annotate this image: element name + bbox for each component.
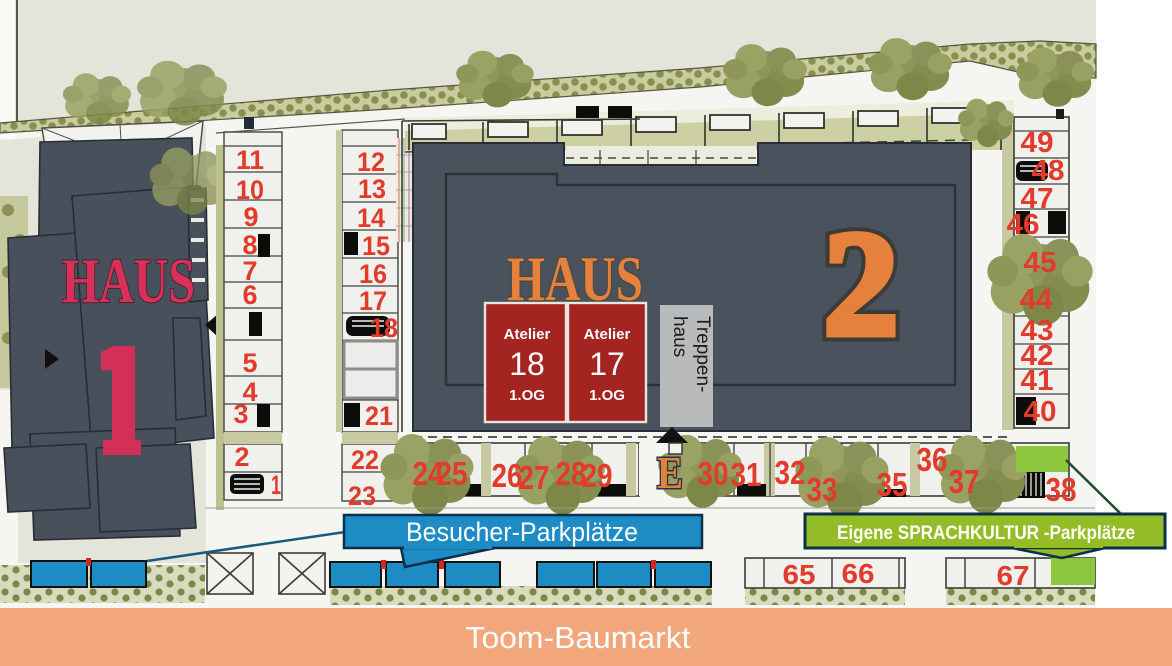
svg-text:15: 15: [362, 231, 390, 261]
svg-text:23: 23: [348, 481, 376, 511]
svg-text:16: 16: [359, 259, 387, 289]
svg-text:30: 30: [698, 455, 729, 492]
svg-text:66: 66: [842, 558, 875, 589]
svg-text:29: 29: [582, 457, 613, 494]
svg-text:41: 41: [1021, 365, 1054, 397]
svg-text:25: 25: [437, 455, 468, 492]
svg-text:12: 12: [357, 147, 385, 177]
svg-text:5: 5: [243, 348, 258, 378]
svg-text:2: 2: [235, 442, 250, 472]
svg-text:17: 17: [359, 286, 387, 316]
svg-text:18: 18: [509, 346, 545, 382]
svg-text:36: 36: [917, 441, 948, 478]
svg-text:32: 32: [775, 454, 806, 491]
svg-text:14: 14: [357, 203, 385, 233]
svg-text:31: 31: [731, 456, 762, 493]
svg-text:67: 67: [997, 560, 1030, 591]
svg-text:46: 46: [1007, 209, 1040, 241]
svg-text:1: 1: [271, 470, 281, 500]
svg-text:1.OG: 1.OG: [509, 387, 545, 404]
svg-text:27: 27: [519, 459, 550, 496]
svg-text:3: 3: [234, 399, 249, 429]
svg-text:Toom-Baumarkt: Toom-Baumarkt: [466, 620, 691, 655]
svg-text:35: 35: [877, 466, 908, 503]
svg-text:33: 33: [807, 471, 838, 508]
svg-text:Atelier: Atelier: [584, 326, 631, 343]
svg-text:HAUS: HAUS: [62, 245, 195, 316]
svg-text:Eigene SPRACHKULTUR -Parkplätz: Eigene SPRACHKULTUR -Parkplätze: [837, 523, 1135, 544]
svg-text:2: 2: [824, 201, 899, 367]
svg-text:45: 45: [1024, 247, 1057, 279]
svg-text:18: 18: [370, 313, 398, 343]
svg-text:38: 38: [1046, 471, 1077, 508]
svg-text:17: 17: [589, 346, 625, 382]
svg-text:6: 6: [243, 280, 258, 310]
svg-text:Atelier: Atelier: [504, 326, 551, 343]
svg-text:10: 10: [236, 175, 264, 205]
svg-text:9: 9: [244, 202, 259, 232]
svg-text:13: 13: [358, 174, 386, 204]
svg-text:Besucher-Parkplätze: Besucher-Parkplätze: [406, 517, 638, 547]
svg-text:37: 37: [949, 463, 980, 500]
svg-text:22: 22: [351, 445, 379, 475]
svg-text:11: 11: [236, 145, 264, 175]
svg-text:E: E: [657, 447, 683, 498]
svg-text:40: 40: [1024, 396, 1057, 428]
svg-text:1.OG: 1.OG: [589, 387, 625, 404]
svg-text:44: 44: [1020, 284, 1053, 316]
svg-text:21: 21: [365, 401, 393, 431]
svg-text:65: 65: [783, 559, 816, 590]
